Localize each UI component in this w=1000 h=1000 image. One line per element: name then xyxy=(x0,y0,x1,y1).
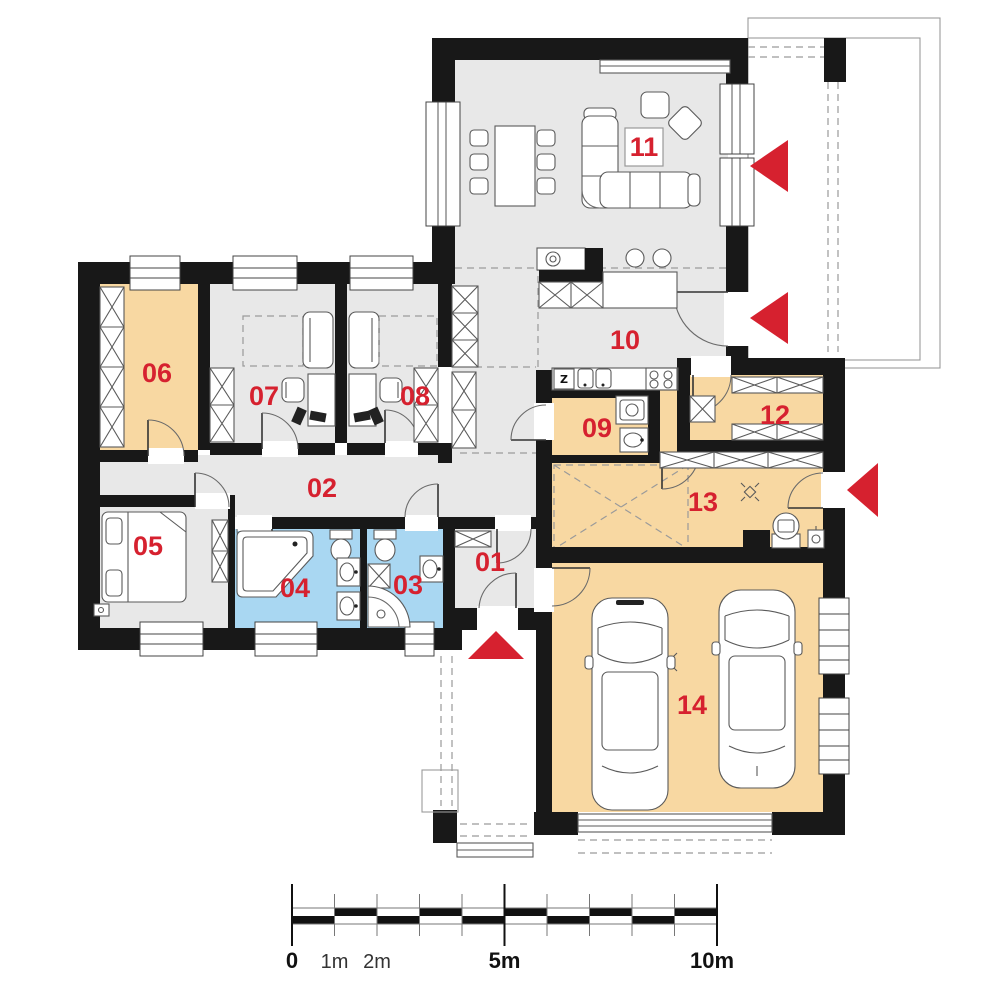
wc-toilet-icon xyxy=(772,513,800,548)
scale-label-10m: 10m xyxy=(690,948,734,973)
bed-icon xyxy=(94,512,186,616)
wardrobe-icon xyxy=(212,520,228,582)
room-11-label: 11 xyxy=(630,132,659,162)
room-04-label: 04 xyxy=(280,573,310,603)
window xyxy=(140,622,203,656)
scale-label-0: 0 xyxy=(286,948,298,973)
pouf-icon xyxy=(641,92,669,118)
window xyxy=(720,84,754,154)
window xyxy=(819,598,849,674)
room-09-label: 09 xyxy=(582,413,612,443)
scale-label-2m: 2m xyxy=(363,951,391,973)
kitchen-counter-icon: Z xyxy=(552,368,678,390)
floor-plan-drawing: Z xyxy=(0,0,1000,1000)
garage-door xyxy=(578,814,772,832)
fireplace-icon xyxy=(537,248,603,282)
car-icon xyxy=(712,590,802,788)
window xyxy=(819,698,849,774)
shelf-icon xyxy=(660,452,823,468)
room-07-label: 07 xyxy=(249,381,279,411)
fridge-label: Z xyxy=(560,373,568,386)
room-05-label: 05 xyxy=(133,531,163,561)
room-12-label: 12 xyxy=(760,400,790,430)
room-02-label: 02 xyxy=(307,473,337,503)
tall-cabinet-icon xyxy=(452,372,476,448)
toilet-icon xyxy=(374,530,396,561)
room-10-label: 10 xyxy=(610,325,640,355)
wardrobe-icon xyxy=(100,287,124,447)
dining-table-icon xyxy=(470,126,555,206)
window xyxy=(720,158,754,226)
washing-machine-icon xyxy=(368,564,390,588)
scale-label-1m: 1m xyxy=(321,951,349,973)
sideboard-icon xyxy=(600,60,730,73)
room-14-label: 14 xyxy=(677,690,707,720)
room-03-label: 03 xyxy=(393,570,423,600)
wardrobe-icon xyxy=(210,368,234,442)
window xyxy=(130,256,180,290)
washing-machine-icon xyxy=(616,396,648,424)
room-08-label: 08 xyxy=(400,381,430,411)
tall-cabinet-icon xyxy=(452,286,478,367)
car-icon xyxy=(585,598,675,810)
window xyxy=(426,102,460,226)
window xyxy=(233,256,297,290)
room-13-label: 13 xyxy=(688,487,718,517)
floor-plan-page: Z xyxy=(0,0,1000,1000)
window xyxy=(255,622,317,656)
window xyxy=(350,256,413,290)
hall-cabinet-icon xyxy=(455,531,491,547)
fridge-icon: Z xyxy=(554,369,574,389)
utility-sink-icon xyxy=(620,428,648,452)
toilet-icon xyxy=(330,530,352,561)
room-01-label: 01 xyxy=(475,547,505,577)
room-06-label: 06 xyxy=(142,358,172,388)
washbasin-icon xyxy=(420,556,443,582)
scale-label-5m: 5m xyxy=(489,948,521,973)
